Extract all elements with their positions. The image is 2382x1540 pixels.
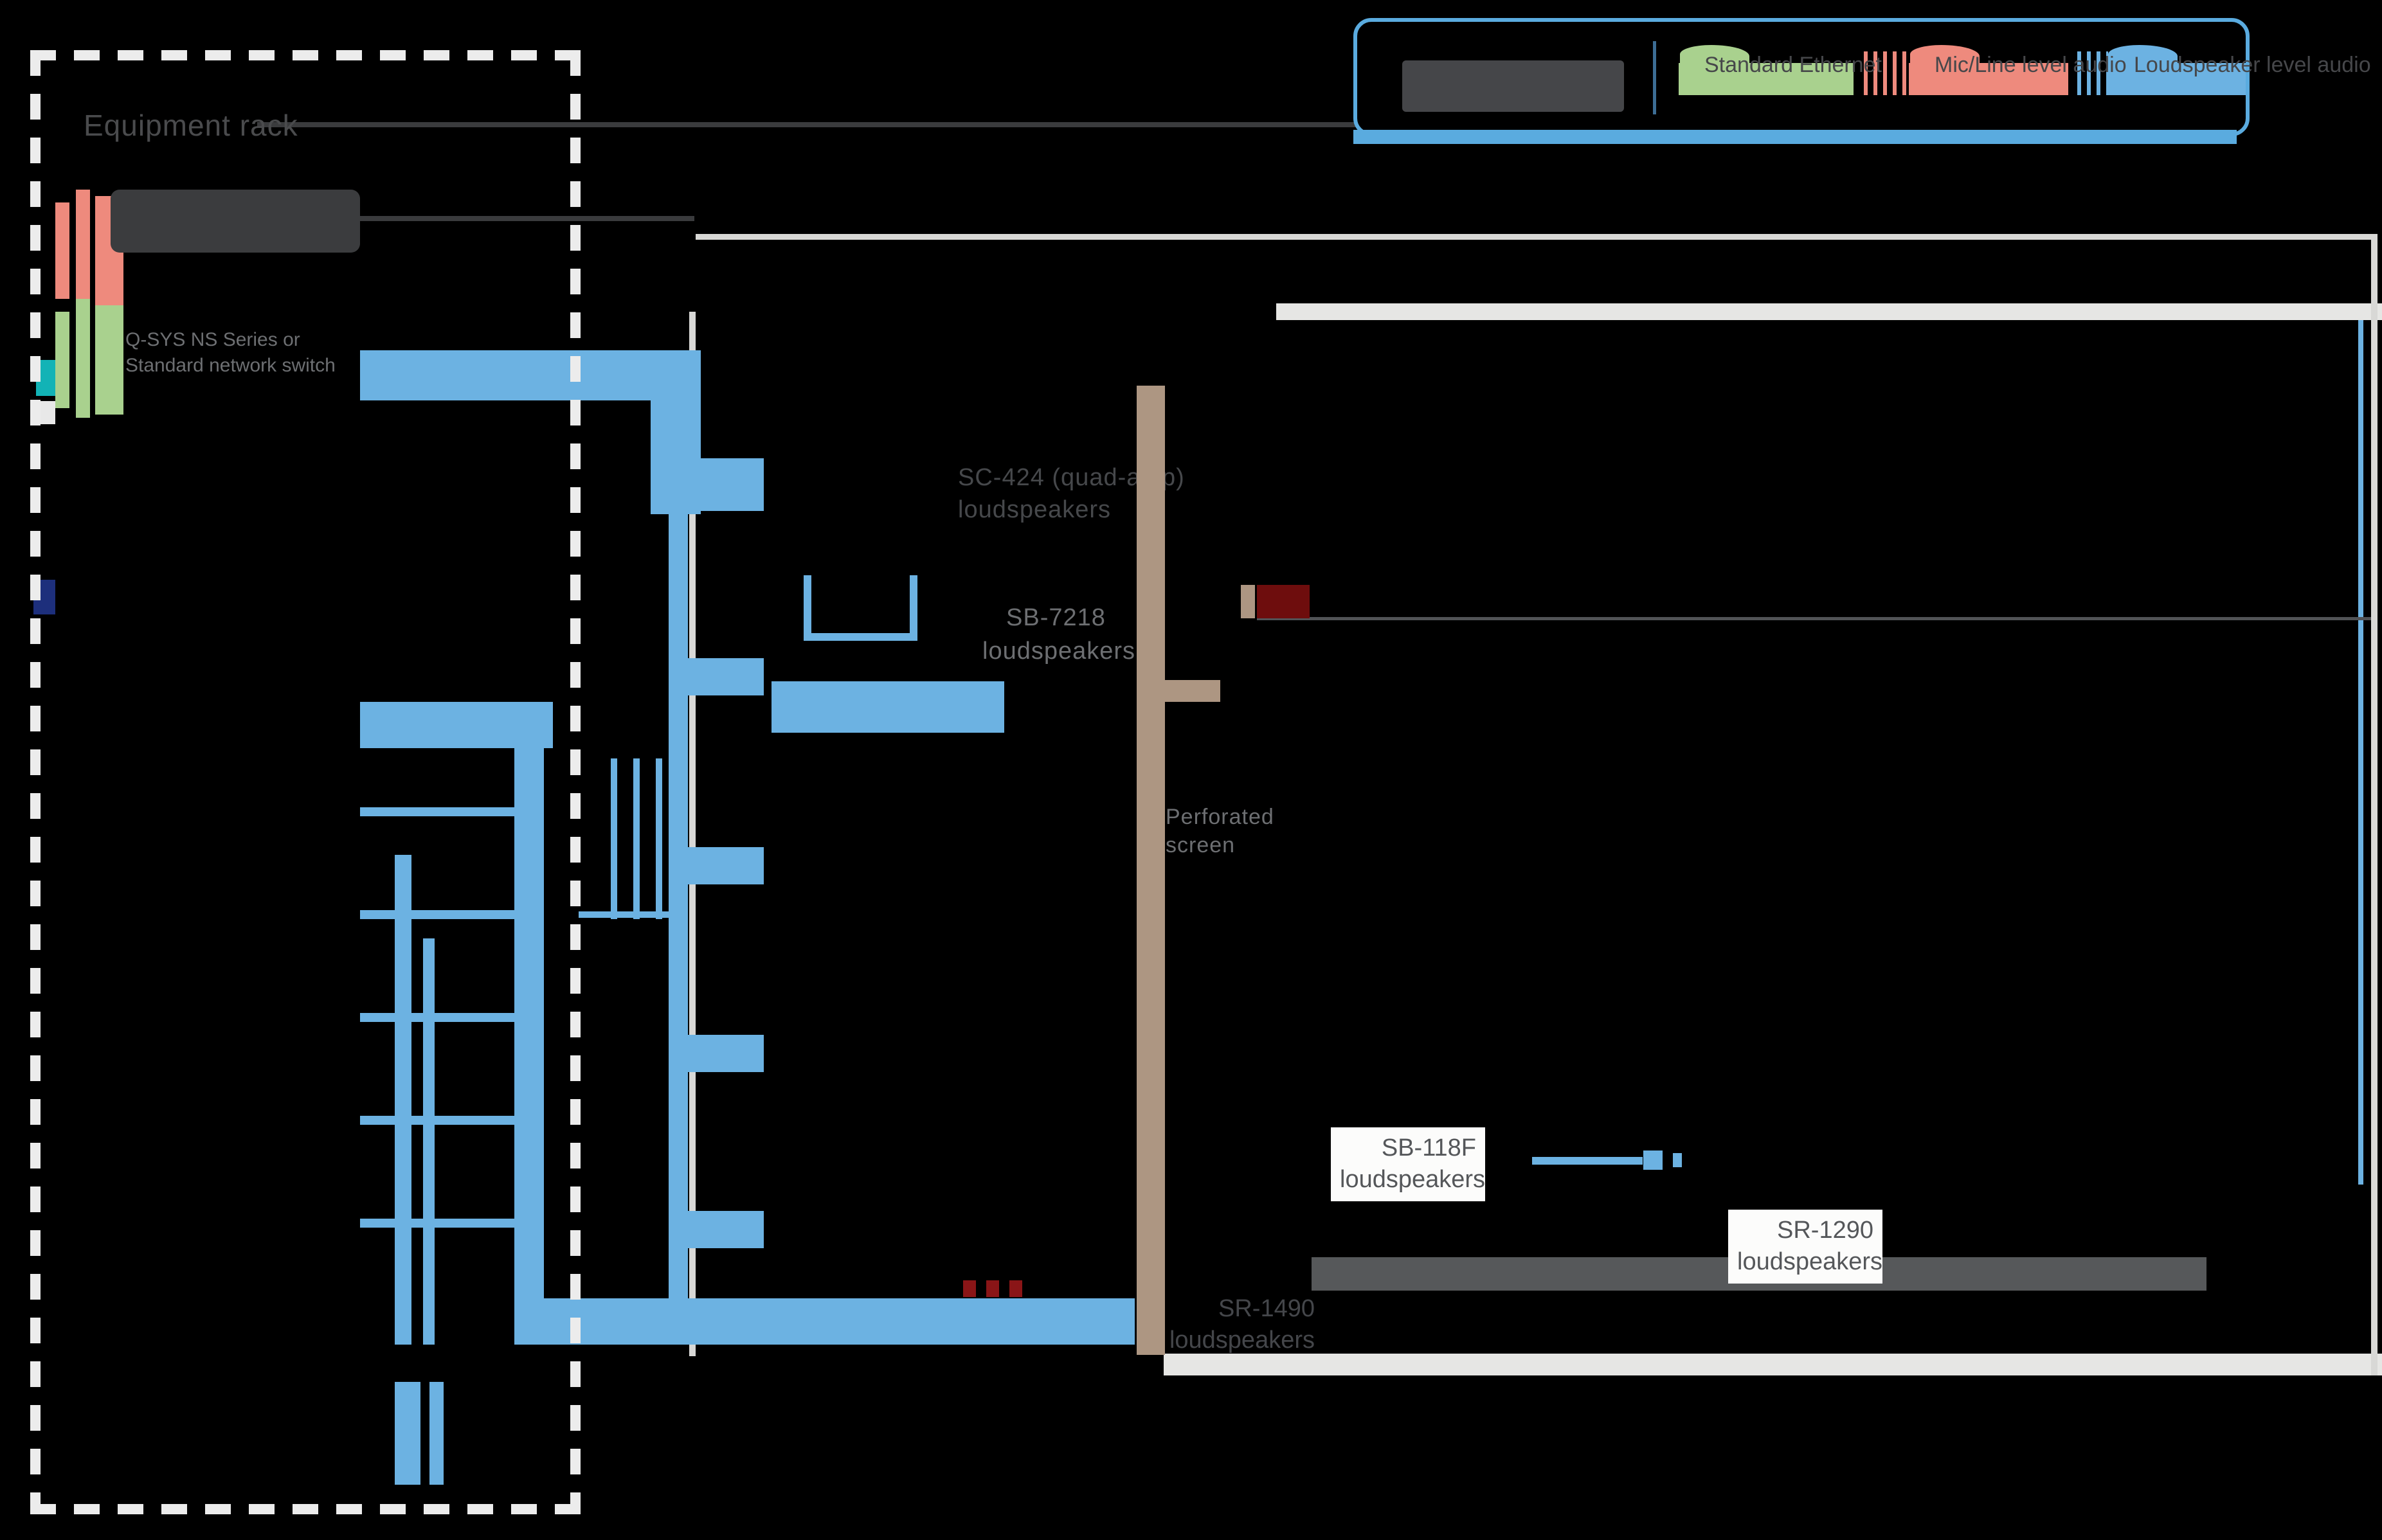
rack-title: Equipment rack: [84, 108, 298, 143]
core-mic-bundle-bar1: [76, 190, 90, 309]
cable-fan-c: [656, 758, 662, 919]
rear-label-line2: loudspeakers: [1169, 1327, 1315, 1354]
core-mic-bundle-bar0: [55, 202, 69, 299]
cable-trunk-v4: [423, 938, 435, 1345]
legend-underbar: [1353, 130, 2237, 144]
cable-sb118f-chip2: [1673, 1153, 1682, 1167]
red-mark-0: [963, 1280, 976, 1297]
cable-c1-cable-a: [804, 575, 811, 641]
cable-fan-a: [611, 758, 617, 919]
cable-trunk-h1: [360, 350, 653, 400]
sb118f-callout: SB-118F loudspeakers: [1331, 1127, 1485, 1201]
ethernet-label: Standard Ethernet: [1704, 53, 1882, 78]
rack-border-right: [570, 50, 581, 1514]
cable-trunk-v2: [514, 748, 544, 1345]
rack-border-left: [30, 50, 41, 1514]
rack-border-top: [30, 50, 581, 60]
cable-stub-amp5: [360, 807, 514, 816]
cable-fan-h: [579, 911, 681, 918]
qsys-core-device: [111, 190, 360, 253]
mic-label: Mic/Line level audio: [1935, 53, 2127, 78]
screen-top-band: [1276, 303, 2382, 320]
sr1290-line1: SR-1290: [1777, 1217, 1873, 1244]
sc424-label-line2: loudspeakers: [958, 496, 1111, 524]
switch-eth-bundle-bar1: [76, 299, 90, 418]
cable-trunk-h2: [360, 702, 553, 748]
cable-c1-cable-h: [804, 633, 917, 641]
cable-stub-b1: [395, 1382, 420, 1485]
auditorium-top-wall: [696, 234, 2374, 240]
cable-sb118f-link: [1532, 1157, 1643, 1165]
switch-caption-line1: Q-SYS NS Series or: [125, 329, 300, 351]
legend-title-block: [1402, 60, 1624, 112]
cable-stub-amp9: [360, 1219, 514, 1228]
screen-wall: [1137, 386, 1165, 1355]
cable-legend: Standard Ethernet Mic/Line level audio L…: [1353, 18, 2250, 136]
screen-wall-stub: [1165, 680, 1220, 702]
sr1290-line2: loudspeakers: [1737, 1248, 1882, 1275]
sb118f-line2: loudspeakers: [1340, 1166, 1485, 1193]
cable-stub-amp6: [360, 910, 514, 919]
cable-feed-c4: [688, 1035, 764, 1072]
rack-border-bottom: [30, 1504, 581, 1514]
row2-ceiling-line: [1257, 617, 2374, 620]
sb7218-label-line1: SB-7218: [1006, 604, 1106, 632]
perforated-screen-label-line2: screen: [1166, 833, 1235, 858]
line-core-network: [360, 216, 694, 221]
switch-caption-line2: Standard network switch: [125, 355, 336, 377]
cable-stub-amp8: [360, 1116, 514, 1125]
right-wall: [2371, 234, 2377, 1375]
cinema-system-diagram: Equipment rack Q-SYS NS Series or Standa…: [0, 0, 2382, 1540]
cable-feed-c2: [688, 658, 764, 695]
cable-feed-c5: [688, 1211, 764, 1248]
cable-c1-cable-b: [910, 575, 917, 641]
perforated-screen-label-line1: Perforated: [1166, 805, 1274, 830]
cable-band-subs: [771, 681, 1004, 733]
bottom-wall: [1164, 1354, 2382, 1375]
loudspeaker-label: Loudspeaker level audio: [2134, 53, 2371, 78]
sr1290-callout: SR-1290 loudspeakers: [1728, 1210, 1882, 1284]
cable-trunk-v3: [395, 855, 411, 1345]
cable-stub-amp7: [360, 1013, 514, 1022]
cable-trunk-main-v: [669, 511, 688, 1345]
cable-fan-b: [633, 758, 640, 919]
cable-band-bottom: [514, 1298, 1135, 1345]
projection-port: [1257, 585, 1310, 618]
switch-eth-bundle-bar2: [95, 305, 123, 415]
red-mark-1: [986, 1280, 999, 1297]
sb7218-label-line2: loudspeakers: [982, 638, 1135, 665]
cable-feed-c1: [651, 458, 764, 511]
legend-divider: [1653, 41, 1656, 114]
cable-feed-c3: [688, 847, 764, 884]
cable-sb118f-chip1: [1643, 1151, 1663, 1170]
cable-right-wall-cable: [2358, 320, 2363, 1185]
rear-loudspeakers-label: SR-1490 loudspeakers: [1164, 1293, 1315, 1357]
sb118f-line1: SB-118F: [1382, 1134, 1476, 1161]
rear-label-line1: SR-1490: [1218, 1295, 1315, 1322]
red-mark-2: [1009, 1280, 1022, 1297]
cable-stub-b2: [429, 1382, 444, 1485]
switch-eth-bundle-bar0: [55, 312, 69, 408]
projection-port-tan: [1241, 585, 1255, 618]
